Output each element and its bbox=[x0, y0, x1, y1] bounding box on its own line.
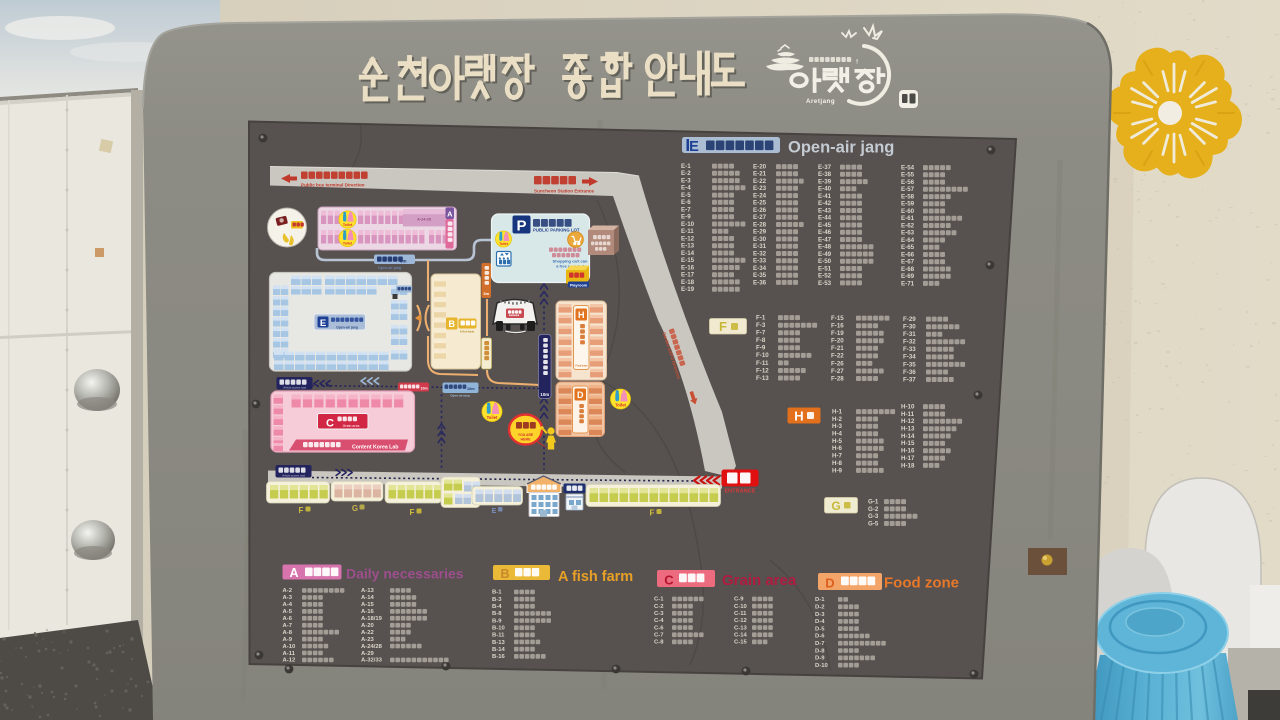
svg-text:A-16: A-16 bbox=[361, 609, 374, 615]
svg-text:10m: 10m bbox=[421, 386, 428, 390]
svg-text:E-65: E-65 bbox=[901, 244, 915, 251]
svg-text:F-16: F-16 bbox=[831, 323, 844, 330]
svg-text:C-9: C-9 bbox=[734, 597, 744, 603]
svg-text:C-1: C-1 bbox=[654, 597, 664, 603]
svg-text:F-3: F-3 bbox=[756, 322, 766, 329]
svg-text:F-21: F-21 bbox=[831, 345, 844, 352]
svg-text:Toilet: Toilet bbox=[487, 415, 498, 420]
svg-text:B-14: B-14 bbox=[492, 647, 505, 653]
svg-text:A-7: A-7 bbox=[283, 623, 293, 629]
svg-text:D-9: D-9 bbox=[815, 656, 825, 662]
svg-text:C-6: C-6 bbox=[654, 625, 664, 631]
svg-text:H-8: H-8 bbox=[832, 460, 843, 467]
svg-text:E-51: E-51 bbox=[818, 265, 832, 272]
svg-text:E-7: E-7 bbox=[681, 206, 691, 213]
svg-text:E-49: E-49 bbox=[818, 251, 832, 258]
svg-text:Aretjang: Aretjang bbox=[806, 98, 835, 105]
svg-text:G: G bbox=[831, 499, 840, 513]
svg-text:E-31: E-31 bbox=[753, 243, 767, 250]
svg-text:E-58: E-58 bbox=[901, 193, 915, 200]
svg-text:E-22: E-22 bbox=[753, 178, 767, 185]
svg-text:E-24: E-24 bbox=[753, 192, 767, 199]
svg-text:F-13: F-13 bbox=[756, 375, 769, 382]
svg-text:E-56: E-56 bbox=[901, 179, 915, 186]
svg-text:F-28: F-28 bbox=[831, 375, 844, 382]
svg-text:E-69: E-69 bbox=[901, 273, 915, 280]
svg-text:Toilet: Toilet bbox=[499, 242, 509, 246]
svg-text:C-4: C-4 bbox=[654, 618, 664, 624]
svg-text:F: F bbox=[299, 506, 304, 515]
svg-text:E-38: E-38 bbox=[818, 171, 832, 178]
svg-text:Vehicle access road: Vehicle access road bbox=[283, 385, 307, 389]
svg-text:E-47: E-47 bbox=[818, 236, 832, 243]
svg-text:E-28: E-28 bbox=[753, 221, 767, 228]
svg-text:F-19: F-19 bbox=[831, 330, 844, 337]
svg-text:C-10: C-10 bbox=[734, 604, 747, 610]
svg-text:D-4: D-4 bbox=[815, 619, 825, 625]
svg-text:E-29: E-29 bbox=[753, 229, 767, 236]
svg-text:E-40: E-40 bbox=[818, 186, 832, 193]
svg-text:E-61: E-61 bbox=[901, 215, 915, 222]
svg-text:C: C bbox=[664, 572, 674, 587]
svg-text:F-27: F-27 bbox=[831, 368, 844, 375]
svg-text:B-3: B-3 bbox=[492, 597, 502, 603]
svg-text:HERE: HERE bbox=[521, 438, 532, 442]
svg-text:E-30: E-30 bbox=[753, 236, 767, 243]
svg-text:F-12: F-12 bbox=[756, 367, 769, 374]
svg-text:G-1: G-1 bbox=[868, 499, 879, 506]
svg-text:E-32: E-32 bbox=[753, 250, 767, 257]
svg-text:E-20: E-20 bbox=[753, 164, 767, 171]
svg-text:H-6: H-6 bbox=[832, 445, 843, 452]
svg-text:E-2: E-2 bbox=[681, 170, 691, 177]
svg-text:A-12: A-12 bbox=[283, 658, 296, 664]
svg-text:D: D bbox=[577, 390, 584, 400]
svg-text:A-24-28: A-24-28 bbox=[417, 218, 431, 222]
svg-text:E-53: E-53 bbox=[818, 280, 832, 287]
svg-text:B: B bbox=[500, 567, 509, 581]
svg-text:E-14: E-14 bbox=[681, 250, 695, 257]
svg-text:Open-air jang: Open-air jang bbox=[336, 326, 358, 330]
svg-text:A-23: A-23 bbox=[361, 637, 374, 643]
svg-text:F-8: F-8 bbox=[756, 337, 766, 344]
svg-text:A fish farm: A fish farm bbox=[460, 330, 475, 334]
svg-text:E-23: E-23 bbox=[753, 185, 767, 192]
svg-text:Daily necessaries: Daily necessaries bbox=[346, 566, 464, 582]
svg-text:H-16: H-16 bbox=[901, 448, 915, 455]
svg-text:E-18: E-18 bbox=[681, 279, 695, 286]
svg-text:F-20: F-20 bbox=[831, 338, 844, 345]
svg-text:E-25: E-25 bbox=[753, 200, 767, 207]
svg-text:A-6: A-6 bbox=[283, 616, 293, 622]
svg-text:F: F bbox=[410, 508, 415, 517]
svg-text:C: C bbox=[326, 417, 334, 429]
svg-text:A-11: A-11 bbox=[283, 651, 296, 657]
svg-text:F-15: F-15 bbox=[831, 315, 844, 322]
svg-text:B: B bbox=[448, 319, 455, 329]
svg-text:H-18: H-18 bbox=[901, 462, 915, 469]
svg-text:E-44: E-44 bbox=[818, 215, 832, 222]
svg-text:E-52: E-52 bbox=[818, 273, 832, 280]
svg-text:E-34: E-34 bbox=[753, 265, 767, 272]
svg-text:E-33: E-33 bbox=[753, 258, 767, 265]
svg-text:E-27: E-27 bbox=[753, 214, 767, 221]
svg-text:F-1: F-1 bbox=[756, 315, 766, 322]
svg-text:Grain area: Grain area bbox=[343, 424, 360, 428]
svg-text:E-13: E-13 bbox=[681, 243, 695, 250]
svg-text:F-37: F-37 bbox=[903, 376, 916, 383]
svg-text:F-26: F-26 bbox=[831, 360, 844, 367]
svg-text:E-42: E-42 bbox=[818, 200, 832, 207]
svg-text:E-62: E-62 bbox=[901, 222, 915, 229]
svg-text:E: E bbox=[320, 318, 326, 329]
svg-text:E-12: E-12 bbox=[681, 235, 695, 242]
svg-text:B-16: B-16 bbox=[492, 654, 505, 660]
svg-text:G: G bbox=[352, 504, 358, 513]
svg-text:H: H bbox=[794, 409, 803, 424]
svg-text:H-7: H-7 bbox=[832, 453, 843, 460]
svg-text:F-30: F-30 bbox=[903, 324, 916, 331]
svg-text:A-13: A-13 bbox=[361, 588, 374, 594]
svg-text:H-4: H-4 bbox=[832, 431, 843, 438]
svg-text:E-68: E-68 bbox=[901, 266, 915, 273]
svg-text:Open-air jang: Open-air jang bbox=[450, 394, 470, 398]
svg-text:E-37: E-37 bbox=[818, 164, 832, 171]
svg-text:A-4: A-4 bbox=[283, 602, 293, 608]
svg-text:Content Korea Lab: Content Korea Lab bbox=[352, 445, 398, 451]
svg-text:B-4: B-4 bbox=[492, 604, 502, 610]
svg-text:E-4: E-4 bbox=[681, 185, 691, 192]
svg-text:C-14: C-14 bbox=[734, 633, 747, 639]
svg-text:D-7: D-7 bbox=[815, 641, 825, 647]
svg-text:E-66: E-66 bbox=[901, 251, 915, 258]
svg-text:E-55: E-55 bbox=[901, 172, 915, 179]
svg-text:Playroom: Playroom bbox=[570, 283, 588, 287]
svg-text:C-2: C-2 bbox=[654, 604, 664, 610]
svg-text:Toilet: Toilet bbox=[343, 241, 353, 245]
svg-text:Toilet: Toilet bbox=[343, 223, 353, 227]
svg-text:F-31: F-31 bbox=[903, 331, 916, 338]
svg-text:F-29: F-29 bbox=[903, 316, 916, 323]
svg-text:B-8: B-8 bbox=[492, 611, 502, 617]
svg-text:E-3: E-3 bbox=[681, 177, 691, 184]
svg-text:E-15: E-15 bbox=[681, 257, 695, 264]
svg-text:E-41: E-41 bbox=[818, 193, 832, 200]
svg-text:E-57: E-57 bbox=[901, 186, 915, 193]
svg-text:H-11: H-11 bbox=[901, 411, 915, 418]
svg-text:E-26: E-26 bbox=[753, 207, 767, 214]
svg-text:E-19: E-19 bbox=[681, 286, 695, 293]
svg-text:F-7: F-7 bbox=[756, 330, 766, 337]
svg-text:F-22: F-22 bbox=[831, 353, 844, 360]
svg-text:E-16: E-16 bbox=[681, 264, 695, 271]
svg-text:A: A bbox=[289, 566, 298, 580]
svg-text:Toilet: Toilet bbox=[615, 403, 626, 408]
svg-text:A-5: A-5 bbox=[283, 609, 293, 615]
svg-text:A-18/19: A-18/19 bbox=[361, 616, 383, 622]
svg-text:F-36: F-36 bbox=[903, 369, 916, 376]
svg-text:P: P bbox=[516, 218, 526, 235]
svg-text:E-64: E-64 bbox=[901, 237, 915, 244]
svg-text:A-15: A-15 bbox=[361, 602, 374, 608]
svg-text:C-12: C-12 bbox=[734, 618, 747, 624]
svg-text:E-11: E-11 bbox=[681, 228, 694, 235]
svg-text:H-10: H-10 bbox=[901, 404, 915, 411]
svg-text:H: H bbox=[578, 310, 585, 320]
svg-text:E-45: E-45 bbox=[818, 222, 832, 229]
svg-text:H-9: H-9 bbox=[832, 467, 843, 474]
svg-text:10m: 10m bbox=[540, 392, 549, 397]
svg-text:F-11: F-11 bbox=[756, 360, 769, 367]
svg-text:Open-air jang: Open-air jang bbox=[788, 139, 894, 157]
svg-text:A-2: A-2 bbox=[283, 588, 293, 594]
svg-text:D-1: D-1 bbox=[815, 597, 825, 603]
svg-text:B-10: B-10 bbox=[492, 626, 505, 632]
svg-text:Public bus terminal Direction: Public bus terminal Direction bbox=[301, 183, 365, 188]
svg-text:E-43: E-43 bbox=[818, 207, 832, 214]
svg-text:D-5: D-5 bbox=[815, 626, 825, 632]
svg-text:D-6: D-6 bbox=[815, 634, 825, 640]
svg-text:Open-air jang: Open-air jang bbox=[378, 266, 401, 270]
svg-text:H-1: H-1 bbox=[832, 409, 843, 416]
svg-text:E-59: E-59 bbox=[901, 201, 915, 208]
svg-text:E-21: E-21 bbox=[753, 171, 767, 178]
svg-text:B-9: B-9 bbox=[492, 618, 502, 624]
svg-text:F-32: F-32 bbox=[903, 339, 916, 346]
svg-text:F-34: F-34 bbox=[903, 354, 916, 361]
svg-text:A: A bbox=[447, 210, 453, 219]
svg-text:E-35: E-35 bbox=[753, 272, 767, 279]
svg-text:A-20: A-20 bbox=[361, 623, 374, 629]
svg-text:E-10: E-10 bbox=[681, 221, 695, 228]
svg-text:C-8: C-8 bbox=[654, 640, 664, 646]
svg-text:E: E bbox=[492, 508, 497, 515]
svg-text:F: F bbox=[719, 319, 727, 334]
svg-text:E-9: E-9 bbox=[681, 214, 691, 221]
svg-text:YOU ARE: YOU ARE bbox=[518, 433, 534, 437]
svg-text:A-10: A-10 bbox=[283, 644, 296, 650]
svg-text:B-11: B-11 bbox=[492, 633, 505, 639]
svg-text:C-13: C-13 bbox=[734, 625, 747, 631]
svg-text:C-3: C-3 bbox=[654, 611, 664, 617]
svg-text:E-17: E-17 bbox=[681, 272, 695, 279]
svg-text:H-2: H-2 bbox=[832, 416, 843, 423]
svg-text:H-15: H-15 bbox=[901, 440, 915, 447]
svg-text:H-17: H-17 bbox=[901, 455, 915, 462]
svg-text:D-3: D-3 bbox=[815, 612, 825, 618]
svg-text:A-14: A-14 bbox=[361, 595, 374, 601]
svg-text:E: E bbox=[689, 139, 699, 155]
svg-text:E-36: E-36 bbox=[753, 279, 767, 286]
svg-text:A-3: A-3 bbox=[283, 595, 293, 601]
svg-text:Vehicle access road: Vehicle access road bbox=[282, 473, 306, 477]
svg-text:G-2: G-2 bbox=[868, 506, 879, 513]
svg-text:E-50: E-50 bbox=[818, 258, 832, 265]
svg-text:10m: 10m bbox=[467, 387, 475, 391]
svg-text:A-22: A-22 bbox=[361, 630, 374, 636]
svg-text:A-24/28: A-24/28 bbox=[361, 644, 383, 650]
svg-text:H-3: H-3 bbox=[832, 423, 843, 430]
svg-text:E-48: E-48 bbox=[818, 244, 832, 251]
svg-text:H-12: H-12 bbox=[901, 418, 915, 425]
svg-text:F-33: F-33 bbox=[903, 346, 916, 353]
svg-text:E-1: E-1 bbox=[681, 163, 691, 170]
svg-text:A-8: A-8 bbox=[283, 630, 293, 636]
svg-text:B-1: B-1 bbox=[492, 590, 502, 596]
svg-text:Food zone: Food zone bbox=[576, 365, 589, 368]
svg-text:Suncheon Station Entrance: Suncheon Station Entrance bbox=[534, 189, 594, 194]
svg-text:H-13: H-13 bbox=[901, 426, 915, 433]
svg-text:E-54: E-54 bbox=[901, 165, 915, 172]
svg-text:D-2: D-2 bbox=[815, 605, 825, 611]
svg-text:C-11: C-11 bbox=[734, 611, 747, 617]
svg-text:Food zone: Food zone bbox=[884, 575, 959, 592]
svg-text:ENTRANCE: ENTRANCE bbox=[724, 489, 755, 495]
svg-text:G-3: G-3 bbox=[868, 513, 879, 520]
svg-text:F-35: F-35 bbox=[903, 361, 916, 368]
svg-text:E-71: E-71 bbox=[901, 280, 915, 287]
svg-text:E-60: E-60 bbox=[901, 208, 915, 215]
svg-text:D-8: D-8 bbox=[815, 648, 825, 654]
svg-text:A fish farm: A fish farm bbox=[558, 569, 633, 585]
svg-text:C-7: C-7 bbox=[654, 633, 664, 639]
svg-text:E-39: E-39 bbox=[818, 178, 832, 185]
svg-text:D-10: D-10 bbox=[815, 663, 828, 669]
svg-text:!: ! bbox=[856, 59, 858, 66]
svg-text:F: F bbox=[650, 509, 655, 518]
svg-text:E-46: E-46 bbox=[818, 229, 832, 236]
svg-text:A-32/33: A-32/33 bbox=[361, 658, 383, 664]
svg-text:E-5: E-5 bbox=[681, 192, 691, 199]
svg-text:G-5: G-5 bbox=[868, 520, 879, 527]
svg-text:E-6: E-6 bbox=[681, 199, 691, 206]
svg-text:H-5: H-5 bbox=[832, 438, 843, 445]
svg-text:D: D bbox=[825, 575, 834, 590]
svg-text:6m: 6m bbox=[400, 259, 407, 264]
svg-text:B-13: B-13 bbox=[492, 640, 505, 646]
svg-text:Grain area: Grain area bbox=[722, 572, 797, 589]
svg-text:A-9: A-9 bbox=[283, 637, 293, 643]
svg-text:E-63: E-63 bbox=[901, 230, 915, 237]
svg-text:3m: 3m bbox=[483, 291, 489, 296]
svg-text:F-9: F-9 bbox=[756, 345, 766, 352]
svg-text:E-67: E-67 bbox=[901, 259, 915, 266]
svg-text:F-10: F-10 bbox=[756, 352, 769, 359]
svg-text:C-15: C-15 bbox=[734, 640, 747, 646]
svg-text:H-14: H-14 bbox=[901, 433, 915, 440]
svg-text:A-29: A-29 bbox=[361, 651, 374, 657]
